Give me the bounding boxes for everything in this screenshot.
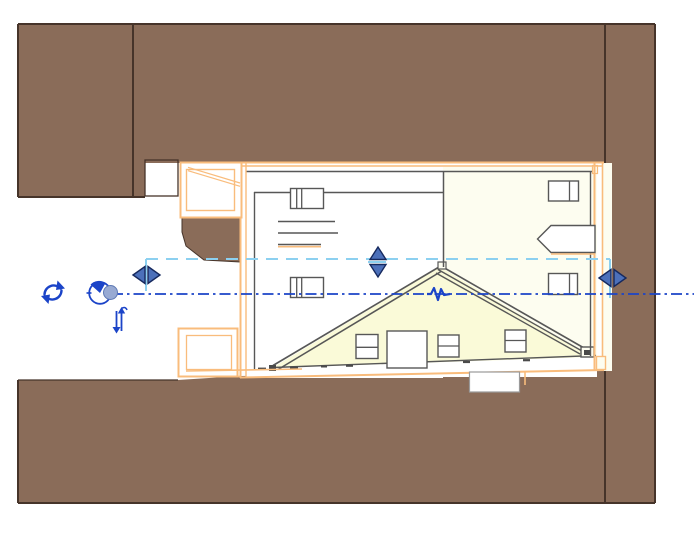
grip-dot[interactable] — [104, 286, 118, 300]
fixture-3[interactable] — [438, 335, 459, 357]
fixture-2[interactable] — [387, 331, 427, 368]
window-symbol-1[interactable] — [291, 189, 324, 209]
drawing-canvas[interactable] — [0, 0, 694, 537]
balcony-upper[interactable] — [181, 163, 242, 218]
porch-pad[interactable] — [470, 372, 520, 392]
flip-arrow-left-icon[interactable] — [133, 267, 145, 284]
terrain-left-block[interactable] — [18, 163, 145, 197]
terrain-notch[interactable] — [182, 218, 240, 262]
southeast-corner-step — [597, 357, 606, 370]
fixture-1[interactable] — [356, 335, 378, 359]
ridge-apex-joint — [438, 262, 446, 269]
terrain-step-block[interactable] — [145, 160, 178, 196]
rotation-center-grip[interactable] — [87, 281, 118, 304]
flip-vertical-icon[interactable] — [113, 307, 128, 334]
rotate-icon[interactable] — [41, 281, 65, 305]
terrain-top[interactable] — [18, 24, 605, 163]
window-symbol-3[interactable] — [549, 181, 579, 201]
plan-view-svg[interactable] — [0, 0, 694, 537]
window-symbol-4[interactable] — [549, 274, 578, 295]
terrain-right-strip[interactable] — [605, 24, 655, 503]
flip-arrow-right-icon[interactable] — [148, 267, 160, 284]
eave-end-right-core — [584, 350, 590, 355]
fixture-4[interactable] — [505, 330, 526, 352]
